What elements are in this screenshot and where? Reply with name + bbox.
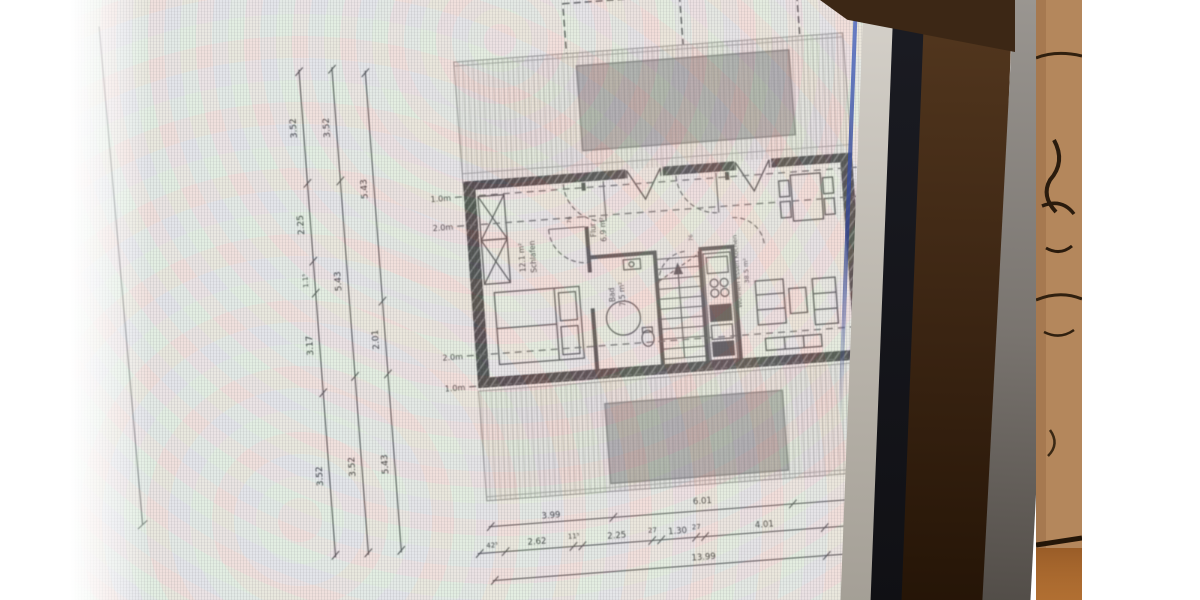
stairs-icon (657, 254, 706, 359)
sink-icon (623, 259, 641, 270)
dim-label: 5.43 (359, 179, 370, 200)
dining-table-icon (778, 172, 835, 222)
dim-label: 3.52 (315, 466, 326, 487)
left-dimension-chains (295, 62, 406, 559)
door-width-label: 76 (688, 234, 695, 242)
height-label: 1.0m (444, 383, 465, 394)
dim-total-label: 13.99 (691, 552, 716, 564)
dim-label: 3.52 (347, 456, 358, 477)
bath-fixtures (602, 258, 654, 349)
brick-wall (1036, 0, 1082, 600)
dim-label: 2.25 (296, 215, 307, 236)
dim-label: 3.99 (541, 510, 561, 521)
height-label: 1.0m (430, 194, 451, 205)
room-area-bedroom: 12.1 m² (517, 242, 528, 272)
door-width-label: 76 (567, 216, 574, 224)
dim-label: 1.30 (668, 526, 688, 537)
room-name-bedroom: Schlafen (527, 240, 538, 273)
dim-label: 3.17 (305, 335, 316, 356)
floor-plan-drawing: 3.52 2.25 1.1⁵ 3.17 3.52 3.52 5.43 3.52 … (85, 0, 905, 600)
dim-label: 11⁵ (568, 532, 580, 541)
left-dimension-labels: 3.52 2.25 1.1⁵ 3.17 3.52 3.52 5.43 3.52 … (289, 113, 392, 487)
dim-label: 3.52 (289, 118, 300, 139)
dim-label: 1.1⁵ (301, 273, 310, 288)
room-area-living: 38.5 m² (741, 257, 751, 283)
page-left-dimension-line (99, 26, 148, 529)
dim-label: 5.43 (380, 454, 391, 475)
cad-drawing: 3.52 2.25 1.1⁵ 3.17 3.52 3.52 5.43 3.52 … (85, 0, 905, 600)
sofa-group-icon (755, 275, 840, 351)
dim-label: 2.01 (371, 329, 382, 350)
wardrobe-icon (478, 195, 511, 285)
room-area-bath: 7.5 m² (617, 281, 628, 306)
dim-label: 2.25 (607, 530, 627, 541)
dim-label: 27 (692, 523, 701, 532)
room-name-bath: Bad (607, 287, 617, 302)
dormer-roof-bottom (605, 390, 788, 483)
dim-label: 42⁵ (486, 541, 498, 550)
dim-label: 5.43 (333, 271, 344, 292)
dim-label: 6.01 (693, 496, 713, 507)
dim-label: 4.01 (755, 519, 775, 530)
height-labels: 1.0m 2.0m 2.0m 1.0m (430, 194, 466, 394)
dim-label: 27 (648, 526, 657, 535)
room-name-hall: Flur (588, 222, 598, 238)
photo-of-monitor: 3.52 2.25 1.1⁵ 3.17 3.52 3.52 5.43 3.52 … (0, 0, 1200, 600)
monitor-screen: 3.52 2.25 1.1⁵ 3.17 3.52 3.52 5.43 3.52 … (0, 0, 905, 600)
dim-label: 3.52 (322, 117, 333, 138)
height-label: 2.0m (442, 352, 463, 363)
coffee-table-icon (789, 287, 808, 313)
dormer-roof-top (576, 50, 795, 151)
interior-walls (581, 172, 743, 370)
dim-label: 2.62 (527, 536, 547, 547)
sideboard-icon (765, 334, 822, 350)
room-area-hall: 6.9 m² (598, 217, 609, 242)
height-label: 2.0m (432, 223, 453, 234)
